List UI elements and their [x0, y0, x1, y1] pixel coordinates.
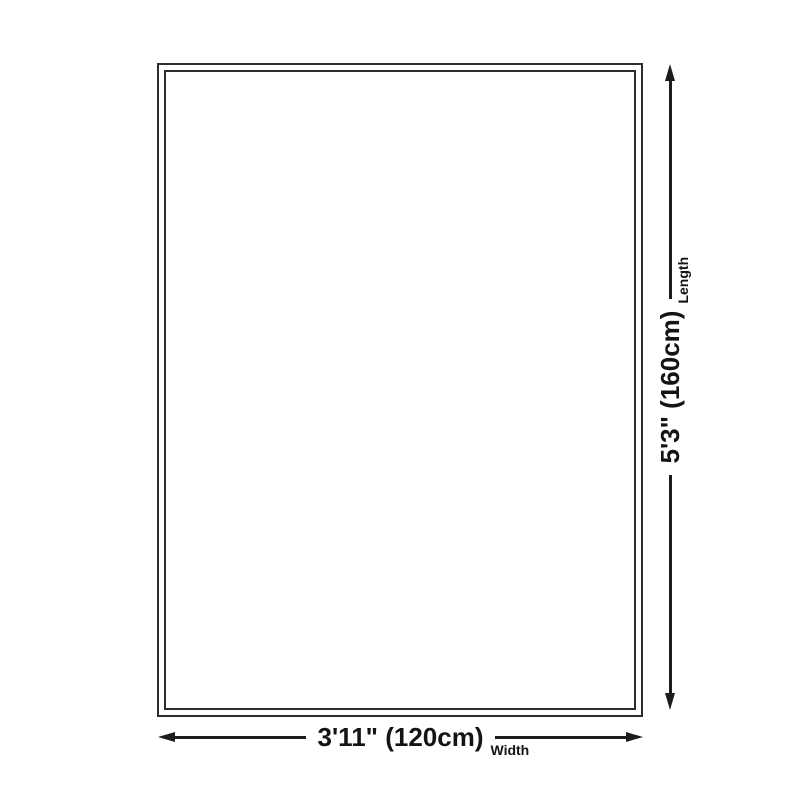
arrow-left-icon — [158, 732, 175, 742]
length-dimension-line-upper: Length — [669, 81, 672, 299]
width-dimension-line-left — [175, 736, 306, 739]
width-label: Width — [490, 743, 529, 757]
length-label: Length — [676, 257, 690, 304]
width-dimension-line-right: Width — [495, 736, 626, 739]
length-value: 5'3" (160cm) — [657, 311, 683, 464]
dimension-diagram: 5'3" (160cm) Length 3'11" (120cm) Width — [0, 0, 800, 800]
width-value: 3'11" (120cm) — [318, 724, 484, 750]
arrow-up-icon — [665, 64, 675, 81]
rug-outline-inner — [164, 70, 636, 710]
rug-outline-outer — [157, 63, 643, 717]
arrow-down-icon — [665, 693, 675, 710]
length-dimension-line-lower — [669, 475, 672, 693]
arrow-right-icon — [626, 732, 643, 742]
length-dimension: 5'3" (160cm) Length — [650, 64, 690, 710]
width-dimension: 3'11" (120cm) Width — [158, 717, 643, 757]
